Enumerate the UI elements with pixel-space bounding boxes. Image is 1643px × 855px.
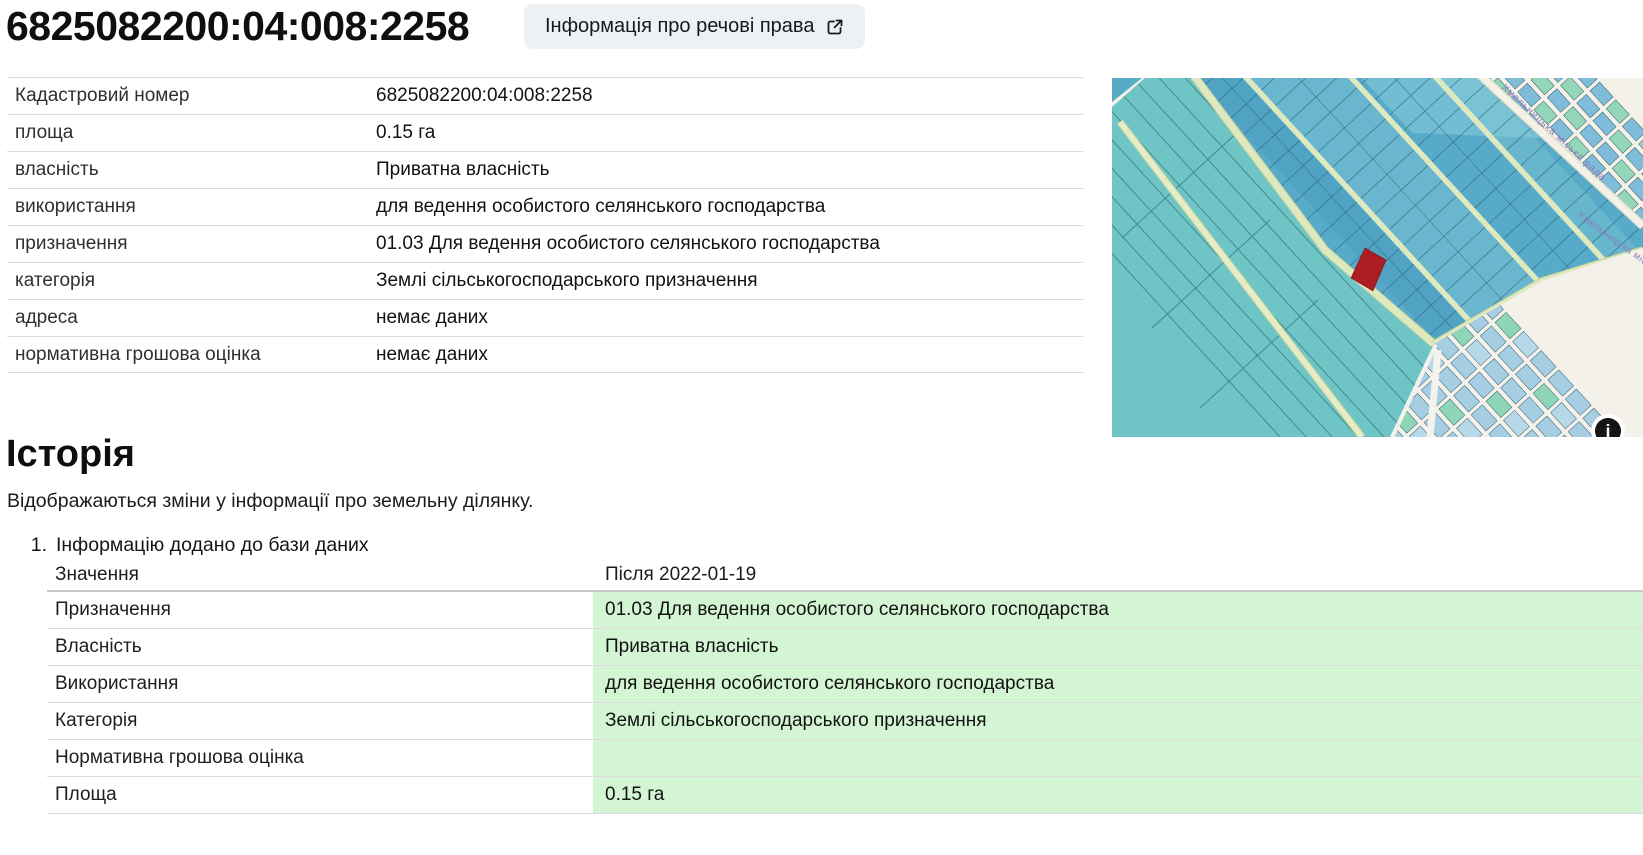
row-value: для ведення особистого селянського госпо… [376,196,1083,218]
row-label: Кадастровий номер [7,85,376,107]
table-row: КатегоріяЗемлі сільськогосподарського пр… [47,703,1643,740]
table-row: призначення01.03 Для ведення особистого … [7,225,1083,262]
row-label: Категорія [47,703,593,739]
row-value: 0.15 га [593,777,1643,813]
history-table-header: Значення Після 2022-01-19 [47,559,1643,592]
table-row: нормативна грошова оцінканемає даних [7,336,1083,373]
row-value [593,740,1643,776]
history-table: Значення Після 2022-01-19 Призначення01.… [47,559,1643,814]
cadastral-map[interactable]: Хмельницька міська рада Хмельницька місь… [1112,78,1643,437]
history-entry-title: 1. Інформацію додано до бази даних [24,534,369,557]
row-value: Землі сільськогосподарського призначення [593,703,1643,739]
row-label: нормативна грошова оцінка [7,344,376,366]
column-header-after: Після 2022-01-19 [593,564,1643,586]
row-value: Приватна власність [376,159,1083,181]
table-row: Площа0.15 га [47,777,1643,814]
table-row: власністьПриватна власність [7,151,1083,188]
table-row: площа0.15 га [7,114,1083,151]
table-row: Нормативна грошова оцінка [47,740,1643,777]
page-title: 6825082200:04:008:2258 [6,0,469,52]
row-label: призначення [7,233,376,255]
row-value: 01.03 Для ведення особистого селянського… [593,592,1643,628]
table-row: Призначення01.03 Для ведення особистого … [47,592,1643,629]
row-value: Землі сільськогосподарського призначення [376,270,1083,292]
column-header-name: Значення [47,564,593,586]
property-rights-button[interactable]: Інформація про речові права [524,4,865,49]
table-row: використаннядля ведення особистого селян… [7,188,1083,225]
history-subtitle: Відображаються зміни у інформації про зе… [7,490,533,513]
parcel-info-table: Кадастровий номер6825082200:04:008:2258 … [7,77,1083,373]
row-value: 6825082200:04:008:2258 [376,85,1083,107]
table-row: адресанемає даних [7,299,1083,336]
row-label: Площа [47,777,593,813]
row-value: для ведення особистого селянського госпо… [593,666,1643,702]
history-entry-index: 1. [24,534,47,557]
row-label: адреса [7,307,376,329]
table-row: Використаннядля ведення особистого селян… [47,666,1643,703]
row-label: Власність [47,629,593,665]
row-value: немає даних [376,307,1083,329]
table-row: Кадастровий номер6825082200:04:008:2258 [7,77,1083,114]
row-label: Призначення [47,592,593,628]
info-icon: i [1605,422,1610,438]
table-row: категоріяЗемлі сільськогосподарського пр… [7,262,1083,299]
row-value: 0.15 га [376,122,1083,144]
history-title: Історія [6,429,135,479]
external-link-icon [826,18,844,36]
cadastral-map-svg: Хмельницька міська рада Хмельницька місь… [1112,78,1643,437]
row-value: 01.03 Для ведення особистого селянського… [376,233,1083,255]
row-value: Приватна власність [593,629,1643,665]
property-rights-button-label: Інформація про речові права [545,15,814,38]
row-label: площа [7,122,376,144]
row-label: Нормативна грошова оцінка [47,740,593,776]
row-value: немає даних [376,344,1083,366]
row-label: Використання [47,666,593,702]
row-label: категорія [7,270,376,292]
table-row: ВласністьПриватна власність [47,629,1643,666]
history-entry-text: Інформацію додано до бази даних [56,534,369,557]
row-label: власність [7,159,376,181]
row-label: використання [7,196,376,218]
